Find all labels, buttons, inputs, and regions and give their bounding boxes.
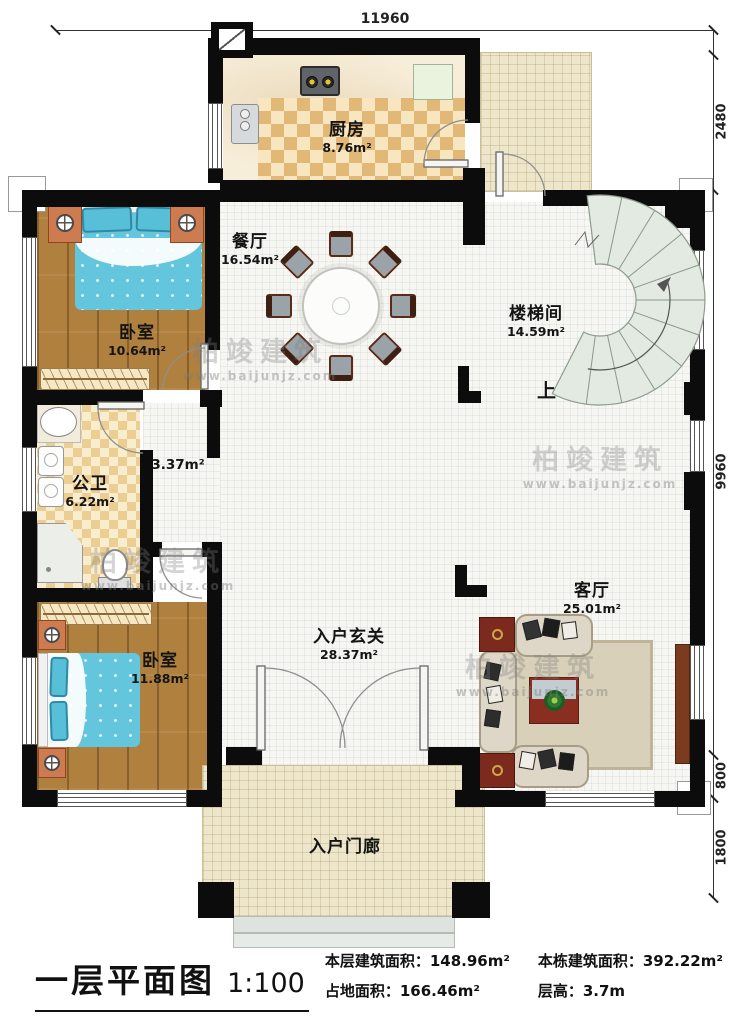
stat-building-area: 本栋建筑面积：392.22m² — [538, 950, 750, 971]
entry-threshold — [262, 747, 428, 765]
fridge — [413, 64, 453, 100]
wall — [463, 168, 485, 245]
cushion — [537, 749, 556, 770]
plan-scale: 1:100 — [227, 968, 305, 999]
tv-cabinet — [675, 644, 690, 764]
door-arc — [160, 556, 202, 598]
wall — [22, 390, 143, 405]
stat-footprint-area: 占地面积：166.46m² — [325, 980, 530, 1001]
pillow — [82, 206, 133, 233]
wall — [684, 472, 705, 510]
floor-plan-canvas: 厨房 8.76m² 餐厅 16.54m² 卧室 10.64m² 楼梯间 14.5… — [0, 0, 750, 1018]
room-label-foyer: 入户玄关 28.37m² — [289, 628, 409, 662]
dimension-line-top — [55, 30, 713, 31]
cushion — [519, 751, 537, 770]
lamp-icon — [44, 627, 60, 643]
window — [545, 791, 655, 807]
wall — [455, 585, 487, 597]
table-ornament — [492, 765, 503, 776]
dining-chair — [329, 355, 353, 381]
wall — [207, 403, 220, 458]
cushion — [542, 618, 561, 639]
chimney-flue — [219, 29, 245, 50]
lamp-icon — [44, 755, 60, 771]
sink-bowl — [240, 121, 250, 131]
nightstand — [48, 203, 82, 243]
dim-label-9960: 9960 — [715, 437, 730, 507]
dining-chair — [266, 294, 292, 318]
end-table — [479, 753, 515, 788]
porch-step — [233, 916, 455, 933]
room-label-bedroom1: 卧室 10.64m² — [77, 324, 197, 358]
chimney — [211, 22, 253, 58]
stat-floor-area: 本层建筑面积：148.96m² — [325, 950, 530, 971]
stair-up-label: 上 — [537, 376, 556, 403]
dim-label-2480: 2480 — [715, 87, 730, 157]
cushion — [561, 621, 578, 640]
room-label-bathroom: 公卫 6.22m² — [30, 475, 150, 509]
plan-title: 一层平面图 1:100 — [35, 948, 309, 1012]
cushion — [486, 685, 504, 704]
wall — [205, 190, 220, 350]
window — [690, 420, 705, 472]
washer — [38, 446, 64, 476]
wall — [226, 747, 262, 765]
stat-floor-height: 层高：3.7m — [538, 980, 750, 1001]
pillow — [49, 701, 68, 742]
room-label-bedroom2: 卧室 11.88m² — [100, 652, 220, 686]
wall — [22, 588, 153, 602]
dining-chair — [390, 294, 416, 318]
room-label-dining: 餐厅 16.54m² — [190, 233, 310, 267]
coffee-table — [529, 677, 579, 724]
dim-label-800: 800 — [715, 741, 730, 811]
dim-label-1800: 1800 — [715, 813, 730, 883]
wall — [458, 391, 481, 403]
lamp-icon — [56, 214, 74, 232]
pillow — [49, 657, 68, 698]
room-label-kitchen: 厨房 8.76m² — [287, 121, 407, 155]
wall — [455, 790, 515, 807]
window — [208, 103, 223, 169]
plant-icon — [544, 690, 565, 711]
window — [690, 250, 705, 350]
terrace-floor — [480, 52, 592, 192]
room-label-porch: 入户门廊 — [285, 838, 405, 858]
wall — [22, 190, 220, 207]
wardrobe-rod — [43, 613, 149, 615]
wardrobe-rod — [43, 378, 147, 380]
window — [57, 790, 187, 807]
kitchen-sink — [231, 104, 259, 144]
wardrobe — [40, 368, 150, 390]
dining-table — [302, 267, 380, 345]
wall — [684, 382, 705, 415]
wall — [202, 542, 222, 557]
toilet — [102, 549, 128, 581]
porch-column — [198, 882, 234, 918]
room-label-living: 客厅 25.01m² — [532, 582, 652, 616]
burner — [306, 76, 318, 88]
table-ornament — [492, 629, 503, 640]
bed-headboard — [38, 653, 48, 747]
sink-bowl — [240, 109, 250, 119]
title-block: 一层平面图 1:100 本层建筑面积：148.96m² 本栋建筑面积：392.2… — [35, 948, 735, 1012]
nightstand — [38, 620, 66, 650]
window — [22, 657, 37, 745]
end-table — [479, 617, 515, 652]
wall — [465, 38, 480, 123]
room-label-corridor: 3.37m² — [133, 458, 223, 474]
shower-drain — [46, 567, 51, 572]
room-label-stairwell: 楼梯间 14.59m² — [476, 305, 596, 339]
table-center — [332, 297, 350, 315]
plan-name: 一层平面图 — [35, 954, 215, 1002]
cushion — [558, 752, 575, 771]
window — [22, 237, 37, 367]
porch-column — [452, 882, 490, 918]
door-leaf — [160, 549, 202, 556]
porch-step — [233, 933, 455, 948]
wall — [145, 542, 162, 557]
nightstand — [38, 748, 66, 778]
stove — [300, 66, 340, 96]
window — [690, 645, 705, 720]
dining-chair — [329, 231, 353, 257]
bathroom-sink — [40, 407, 77, 437]
washer-door — [44, 453, 58, 467]
lamp-icon — [178, 214, 196, 232]
wall — [220, 180, 463, 202]
cushion — [484, 709, 501, 728]
burner — [322, 76, 334, 88]
dim-label-top: 11960 — [330, 11, 440, 27]
plan-stats: 本层建筑面积：148.96m² 本栋建筑面积：392.22m² 占地面积：166… — [325, 950, 750, 1001]
